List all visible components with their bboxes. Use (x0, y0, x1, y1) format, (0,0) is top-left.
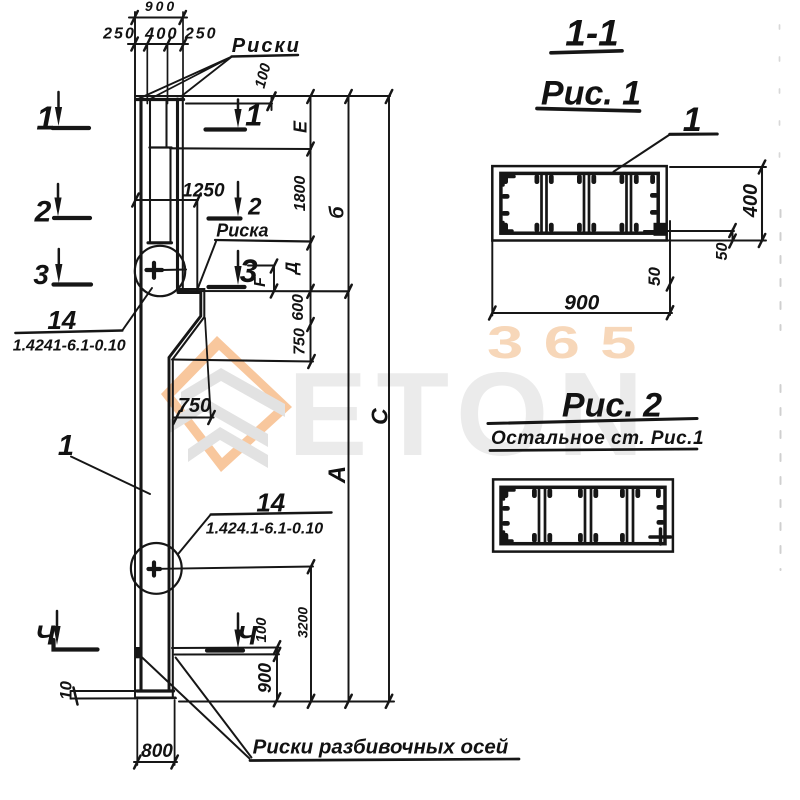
svg-text:800: 800 (141, 741, 173, 762)
svg-text:б: б (327, 206, 349, 219)
svg-text:400: 400 (740, 184, 762, 218)
svg-text:Остальное ст. Рис.1: Остальное ст. Рис.1 (491, 428, 704, 449)
svg-text:100: 100 (253, 617, 270, 643)
svg-text:1800: 1800 (292, 176, 309, 212)
svg-text:1.424.1-6.1-0.10: 1.424.1-6.1-0.10 (206, 521, 324, 538)
svg-text:C: C (367, 408, 393, 425)
svg-text:E: E (291, 120, 311, 133)
svg-text:2: 2 (34, 196, 52, 229)
svg-text:Риски: Риски (232, 35, 301, 57)
svg-text:A: A (324, 466, 351, 484)
svg-text:3: 3 (33, 259, 49, 290)
svg-text:3200: 3200 (295, 607, 311, 638)
svg-text:900: 900 (564, 292, 599, 315)
svg-text:F: F (252, 276, 269, 287)
svg-text:750: 750 (292, 328, 309, 355)
svg-text:250: 250 (102, 26, 136, 43)
svg-text:2: 2 (247, 193, 262, 220)
svg-text:900: 900 (145, 0, 177, 14)
svg-text:10: 10 (57, 681, 76, 700)
svg-text:Риски разбивочных осей: Риски разбивочных осей (253, 736, 509, 759)
svg-text:600: 600 (290, 294, 307, 321)
svg-text:Риска: Риска (216, 221, 268, 241)
svg-text:1-1: 1-1 (565, 13, 618, 54)
svg-text:900: 900 (255, 663, 275, 693)
svg-text:50: 50 (645, 267, 664, 286)
svg-text:50: 50 (714, 243, 731, 261)
svg-text:1.4241-6.1-0.10: 1.4241-6.1-0.10 (13, 338, 126, 355)
svg-text:Рис. 1: Рис. 1 (541, 75, 641, 113)
svg-text:1250: 1250 (182, 181, 225, 202)
svg-text:1: 1 (245, 98, 262, 133)
svg-text:750: 750 (178, 395, 211, 417)
svg-text:1: 1 (36, 100, 54, 137)
svg-text:250: 250 (184, 26, 218, 43)
svg-text:Д: Д (282, 262, 301, 276)
